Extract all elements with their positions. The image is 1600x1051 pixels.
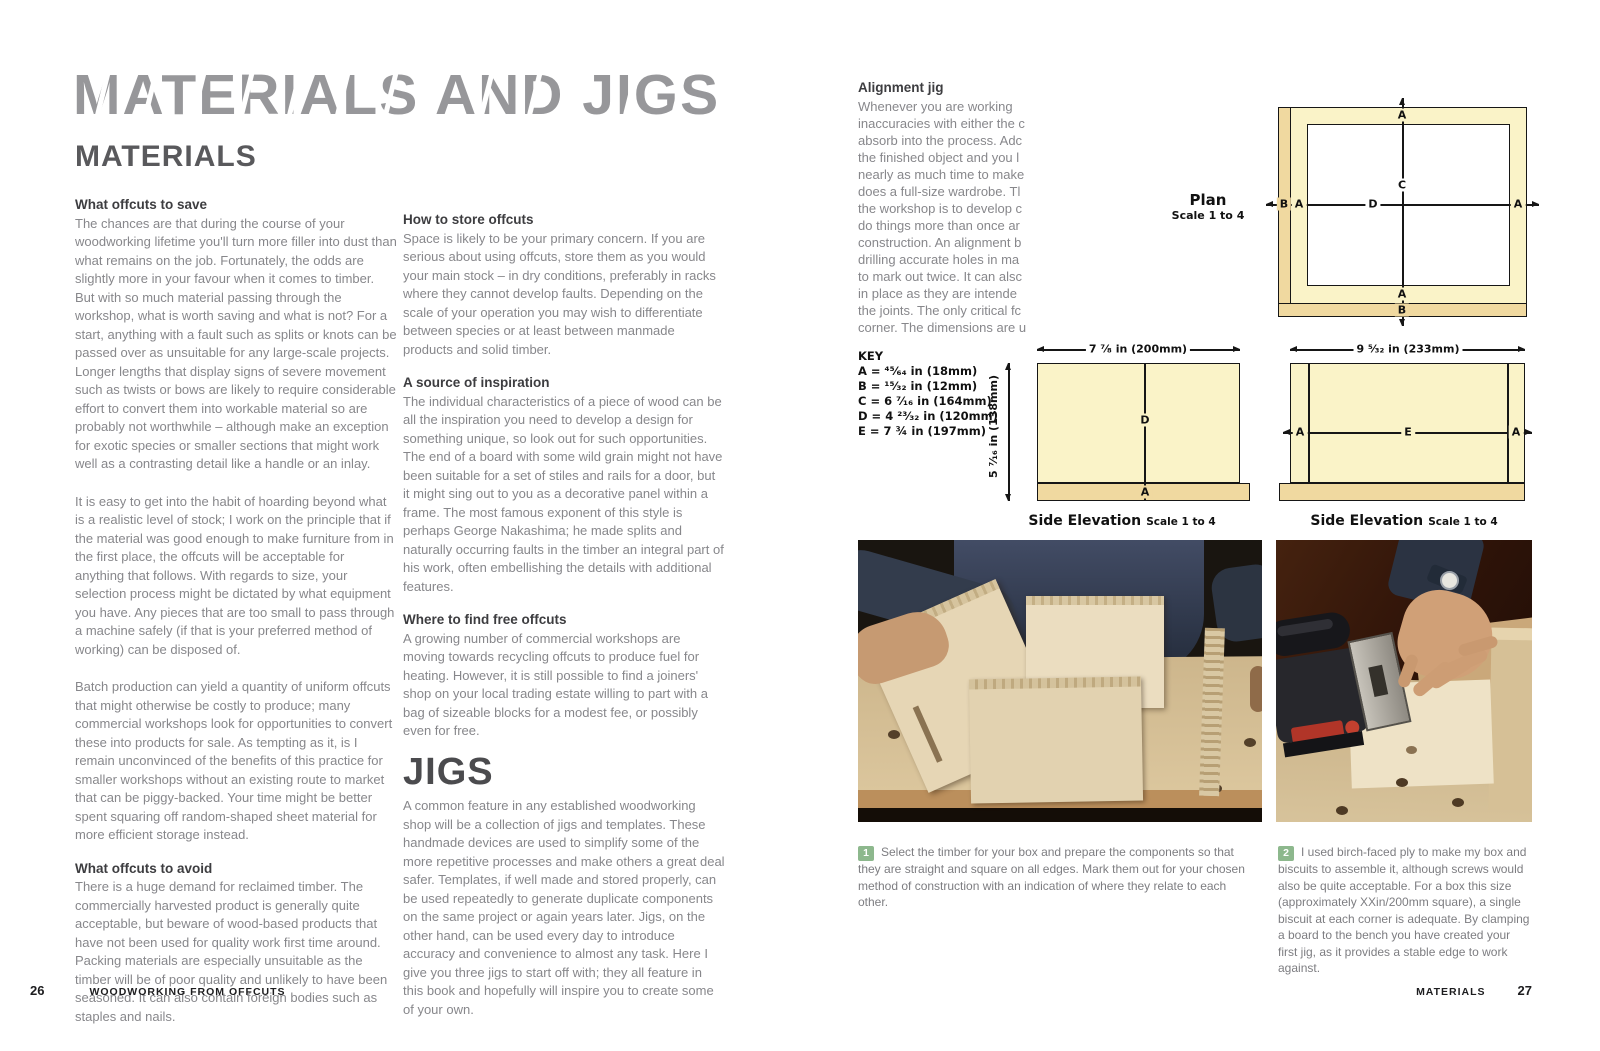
elevation-caption: Side Elevation Scale 1 to 4 — [988, 510, 1256, 529]
arrow-down-icon — [1399, 319, 1405, 326]
caption-scale: Scale 1 to 4 — [1146, 516, 1215, 528]
paragraph: It is easy to get into the habit of hoar… — [75, 493, 397, 660]
plan-diagram: A C A B B A D A — [1278, 107, 1527, 317]
bench-dog-hole — [888, 730, 900, 739]
workbench-shadow — [858, 808, 1262, 822]
dim-label-a-bottom: A — [1395, 288, 1410, 301]
footer-right: MATERIALS 27 — [1416, 983, 1532, 998]
person-right-hand — [1250, 666, 1262, 712]
width-dimension: 7 ⁷⁄₈ in (200mm) — [1086, 343, 1190, 356]
dim-label-d: D — [1365, 198, 1380, 211]
paragraph: There is a huge demand for reclaimed tim… — [75, 878, 397, 1026]
text-line: the workshop is to develop c — [858, 200, 1198, 217]
key-item: D = 4 ²³⁄₃₂ in (120mm) — [858, 409, 998, 424]
text-line: absorb into the process. Adc — [858, 132, 1198, 149]
text-line: corner. The dimensions are u — [858, 319, 1198, 336]
heading-a-source-of-inspiration: A source of inspiration — [403, 374, 725, 393]
text-line: Whenever you are working — [858, 98, 1198, 115]
arrow-right-icon — [1532, 201, 1539, 207]
bench-dog-hole — [1396, 778, 1408, 787]
plan-label: Plan Scale 1 to 4 — [1152, 191, 1264, 222]
bench-dog-hole — [1244, 738, 1256, 747]
caption-title: Side Elevation — [1028, 513, 1141, 529]
step-number-badge: 2 — [1278, 846, 1294, 861]
arrow-up-icon — [1399, 98, 1405, 105]
paragraph: Space is likely to be your primary conce… — [403, 230, 725, 360]
footer-left: 26 WOODWORKING FROM OFFCUTS — [30, 983, 286, 998]
heading-where-to-find-free-offcuts: Where to find free offcuts — [403, 611, 725, 630]
footer-section: MATERIALS — [1416, 986, 1485, 998]
biscuit-slot — [913, 706, 943, 763]
jointer-slot — [1368, 665, 1388, 697]
bench-dog-hole — [1452, 798, 1464, 807]
caption-title: Side Elevation — [1310, 513, 1423, 529]
arrow-right-icon — [1233, 346, 1240, 352]
step1-caption-text: Select the timber for your box and prepa… — [858, 845, 1245, 909]
dim-label-a-left: A — [1292, 198, 1307, 211]
height-dimension: 5 ⁷⁄₁₆ in (138mm) — [987, 375, 1000, 478]
text-line: the joints. The only critical fc — [858, 302, 1198, 319]
heading-how-to-store-offcuts: How to store offcuts — [403, 211, 725, 230]
arrow-down-icon — [1005, 494, 1011, 501]
width-dimension: 9 ⁵⁄₃₂ in (233mm) — [1354, 343, 1463, 356]
text-line: in place as they are intende — [858, 285, 1198, 302]
text-line: do things more than once ar — [858, 217, 1198, 234]
elevation-base — [1279, 483, 1525, 501]
alignment-jig-text: Whenever you are working inaccuracies wi… — [858, 98, 1198, 336]
paragraph: A common feature in any established wood… — [403, 797, 725, 1019]
dim-label-b-bottom-edge: B — [1395, 304, 1409, 317]
section-title-jigs: JIGS — [403, 763, 725, 782]
section-title-materials: MATERIALS — [75, 140, 257, 174]
arrow-left-icon — [1290, 346, 1297, 352]
paragraph: The chances are that during the course o… — [75, 215, 397, 474]
side-elevation-1: 7 ⁷⁄₈ in (200mm) 5 ⁷⁄₁₆ in (138mm) D A S… — [988, 340, 1256, 530]
left-column-1: What offcuts to save The chances are tha… — [75, 196, 397, 1026]
caption-scale: Scale 1 to 4 — [1428, 516, 1497, 528]
dim-label-a-base: A — [1138, 486, 1153, 499]
board-edge — [1491, 628, 1532, 641]
key-item: E = 7 ¾ in (197mm) — [858, 424, 998, 439]
step2-caption-text: I used birch-faced ply to make my box an… — [1278, 845, 1529, 975]
plywood-edge — [969, 677, 1141, 690]
text-line: construction. An alignment b — [858, 234, 1198, 251]
heading-alignment-jig: Alignment jig — [858, 80, 944, 95]
watch-face — [1440, 571, 1459, 590]
text-line: inaccuracies with either the c — [858, 115, 1198, 132]
key-item: A = ⁴⁵⁄₆₄ in (18mm) — [858, 364, 998, 379]
heading-what-offcuts-to-save: What offcuts to save — [75, 196, 397, 215]
bench-dog-hole — [1336, 806, 1348, 815]
plywood-edge — [1026, 596, 1164, 605]
step2-photo — [1276, 540, 1532, 822]
key-title: KEY — [858, 349, 998, 364]
key-item: C = 6 ⁷⁄₁₆ in (164mm) — [858, 394, 998, 409]
arrow-left-icon — [1266, 201, 1273, 207]
elevation-panel — [1290, 363, 1525, 483]
arrow-left-icon — [1283, 429, 1290, 435]
step-number-badge: 1 — [858, 846, 874, 861]
elevation-caption: Side Elevation Scale 1 to 4 — [1272, 510, 1536, 529]
dim-label-a-right: A — [1509, 426, 1524, 439]
panel-joint-line — [1308, 363, 1310, 483]
left-column-2: How to store offcuts Space is likely to … — [403, 211, 725, 1019]
plan-horizontal-dim-line — [1266, 204, 1539, 206]
book-title: WOODWORKING FROM OFFCUTS — [89, 986, 285, 998]
plan-scale: Scale 1 to 4 — [1152, 209, 1264, 222]
arrow-left-icon — [1037, 346, 1044, 352]
page-number-left: 26 — [30, 983, 44, 998]
dim-label-a-left: A — [1293, 426, 1308, 439]
panel-joint-line — [1507, 363, 1509, 483]
dim-line — [1144, 363, 1146, 501]
arrow-right-icon — [1518, 346, 1525, 352]
text-line: the finished object and you l — [858, 149, 1198, 166]
plywood-panel-front — [969, 677, 1143, 804]
text-line: to mark out twice. It can alsc — [858, 268, 1198, 285]
paragraph: A growing number of commercial workshops… — [403, 630, 725, 741]
side-board — [1488, 628, 1532, 811]
side-elevation-2: 9 ⁵⁄₃₂ in (233mm) A E A Side Elevation S… — [1272, 340, 1536, 530]
dim-line — [1008, 363, 1010, 501]
key-item: B = ¹⁵⁄₃₂ in (12mm) — [858, 379, 998, 394]
dim-label-d: D — [1137, 414, 1152, 427]
page-number-right: 27 — [1518, 983, 1532, 998]
paragraph: Batch production can yield a quantity of… — [75, 678, 397, 845]
dim-label-e: E — [1401, 426, 1415, 439]
text-line: nearly as much time to make — [858, 166, 1198, 183]
dim-label-a-top: A — [1395, 109, 1410, 122]
paragraph: The individual characteristics of a piec… — [403, 393, 725, 597]
step1-photo — [858, 540, 1262, 822]
key-block: KEY A = ⁴⁵⁄₆₄ in (18mm) B = ¹⁵⁄₃₂ in (12… — [858, 349, 998, 439]
arrow-right-icon — [1525, 429, 1532, 435]
plan-title: Plan — [1152, 191, 1264, 209]
step1-caption: 1Select the timber for your box and prep… — [858, 844, 1246, 911]
text-line: does a full-size wardrobe. Tl — [858, 183, 1198, 200]
dim-label-a-right: A — [1511, 198, 1526, 211]
step2-caption: 2I used birch-faced ply to make my box a… — [1278, 844, 1532, 977]
arrow-up-icon — [1005, 363, 1011, 370]
dim-label-c: C — [1395, 179, 1409, 192]
text-line: drilling accurate holes in ma — [858, 251, 1198, 268]
dim-label-b-left-edge: B — [1277, 198, 1291, 211]
heading-what-offcuts-to-avoid: What offcuts to avoid — [75, 860, 397, 879]
